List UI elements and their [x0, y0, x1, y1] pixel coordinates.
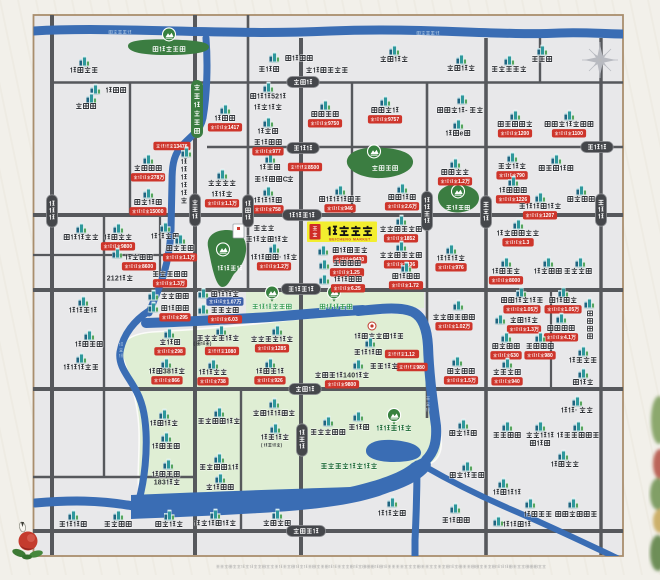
svg-text:1.05万: 1.05万: [524, 306, 539, 313]
svg-text:980: 980: [416, 365, 425, 371]
svg-text:·: ·: [279, 255, 281, 262]
svg-text:0: 0: [351, 373, 355, 380]
svg-text:1.25: 1.25: [350, 270, 360, 276]
svg-text:1.3万: 1.3万: [527, 326, 539, 333]
svg-text:1100: 1100: [572, 131, 583, 137]
svg-text:15000: 15000: [150, 209, 164, 215]
svg-text:2: 2: [275, 94, 279, 101]
svg-text:9800: 9800: [121, 244, 132, 250]
svg-text:1.72: 1.72: [409, 283, 419, 289]
svg-text:8000: 8000: [509, 278, 520, 284]
svg-text:8: 8: [167, 369, 171, 376]
svg-text:6.03: 6.03: [228, 317, 238, 323]
svg-text:BEICHENG MARKET: BEICHENG MARKET: [329, 237, 371, 241]
svg-text:4.1万: 4.1万: [564, 334, 576, 341]
svg-text:1200: 1200: [518, 131, 529, 137]
svg-text:1.5万: 1.5万: [464, 377, 476, 384]
svg-text:630: 630: [510, 353, 519, 359]
svg-text:1.05万: 1.05万: [565, 306, 580, 313]
svg-text:1080: 1080: [225, 349, 236, 355]
svg-text:1.2万: 1.2万: [277, 263, 289, 270]
svg-text:295: 295: [180, 315, 189, 321]
svg-text:1207: 1207: [543, 213, 554, 219]
svg-text:278万: 278万: [151, 174, 164, 181]
svg-text:1852: 1852: [404, 236, 415, 242]
svg-text:2: 2: [115, 276, 119, 283]
svg-text:9757: 9757: [388, 117, 399, 123]
svg-text:6.25: 6.25: [351, 286, 361, 292]
svg-text:8500: 8500: [308, 165, 319, 171]
svg-text:1226: 1226: [516, 197, 527, 203]
svg-text:1.1万: 1.1万: [183, 254, 195, 261]
svg-text:758: 758: [272, 207, 281, 213]
svg-text:1.02万: 1.02万: [456, 323, 471, 330]
svg-text:977: 977: [272, 149, 281, 155]
svg-text:926: 926: [274, 378, 283, 384]
svg-text:298: 298: [175, 349, 184, 355]
svg-text:1285: 1285: [275, 346, 286, 352]
svg-text:2.6万: 2.6万: [405, 203, 417, 210]
svg-text:1417: 1417: [228, 125, 239, 131]
svg-text:976: 976: [455, 265, 464, 271]
svg-text:1.3万: 1.3万: [173, 280, 185, 287]
svg-text:1.2万: 1.2万: [458, 178, 470, 185]
svg-text:940: 940: [511, 379, 520, 385]
svg-text:e: e: [460, 131, 464, 138]
svg-text:1: 1: [228, 465, 232, 472]
svg-text:1.1万: 1.1万: [225, 200, 237, 207]
svg-text:9750: 9750: [328, 121, 339, 127]
svg-text:946: 946: [344, 206, 353, 212]
svg-text:738: 738: [218, 379, 227, 385]
svg-text:·: ·: [575, 408, 577, 415]
svg-text:3: 3: [162, 480, 166, 487]
svg-text:866: 866: [172, 378, 181, 384]
svg-text:9800: 9800: [345, 382, 356, 388]
svg-text:1.12: 1.12: [405, 352, 415, 358]
svg-text:980: 980: [544, 353, 553, 359]
svg-text:8600: 8600: [142, 264, 153, 270]
svg-text:C: C: [283, 177, 288, 184]
svg-text:1.3: 1.3: [522, 240, 529, 246]
svg-text:790: 790: [516, 173, 525, 179]
svg-text:1.07万: 1.07万: [227, 298, 242, 305]
